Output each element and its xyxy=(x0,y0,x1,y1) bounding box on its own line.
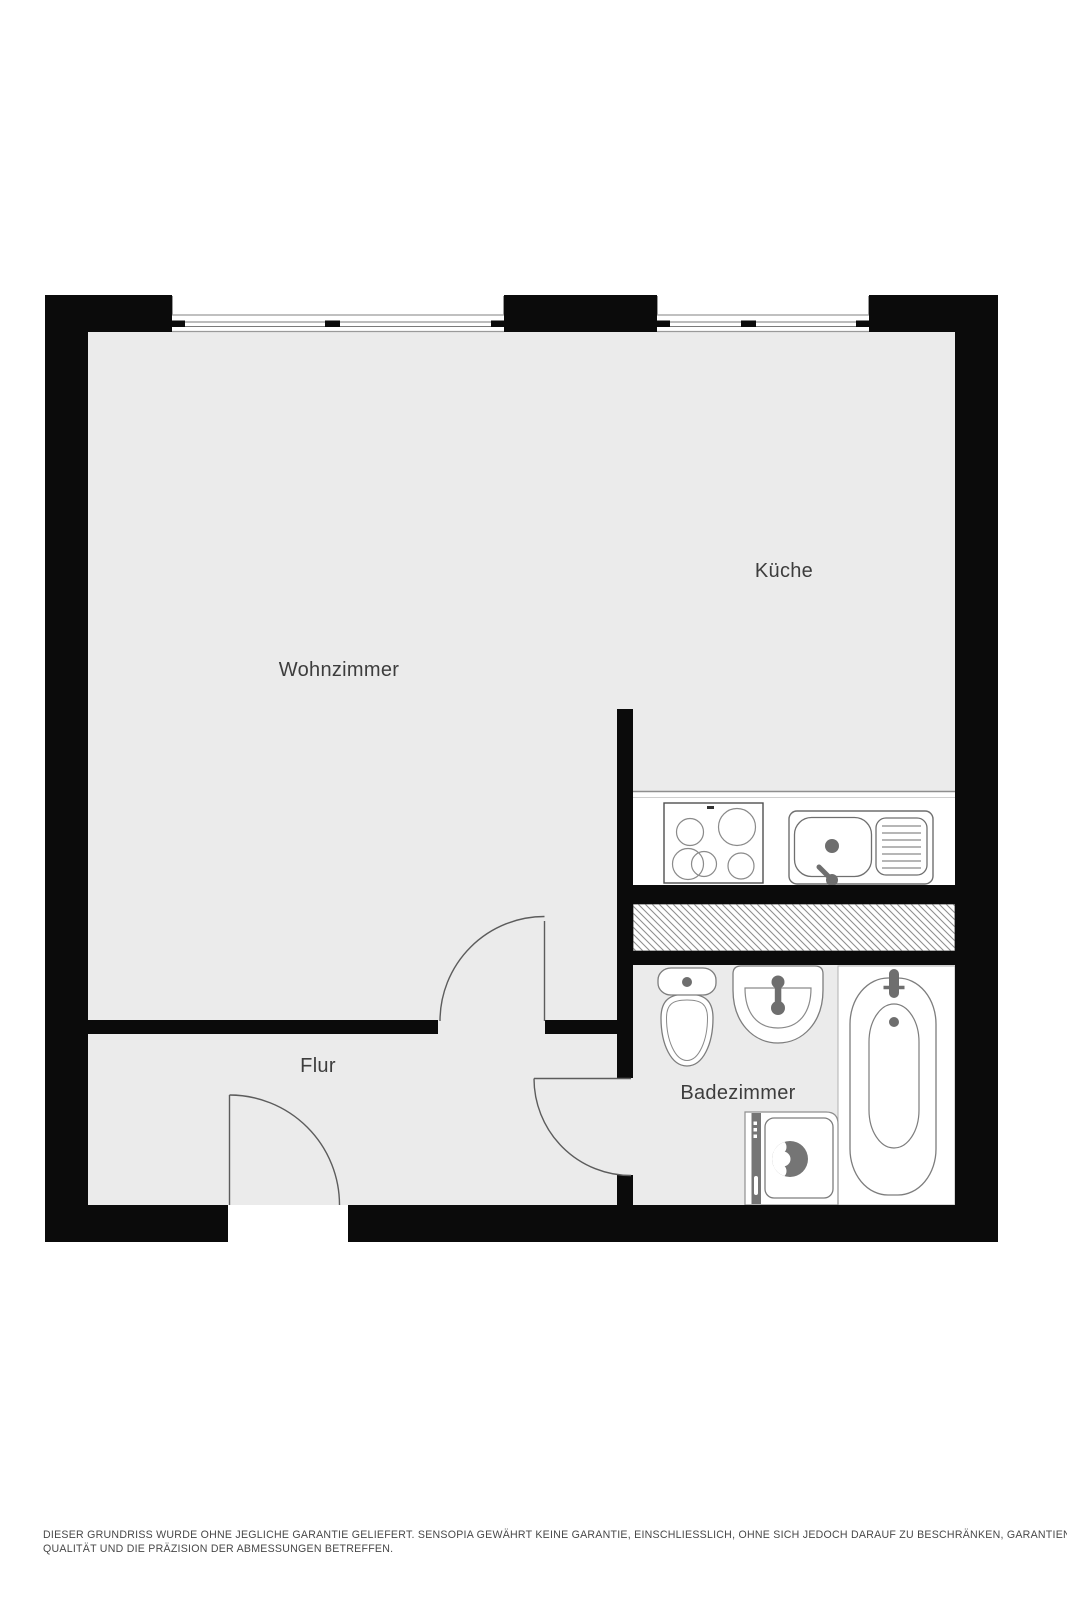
disclaimer: DIESER GRUNDRISS WURDE OHNE JEGLICHE GAR… xyxy=(43,1529,1053,1556)
window-left-icon xyxy=(172,296,504,332)
wall-bottom-right xyxy=(348,1205,998,1242)
wall-center-lower-stub xyxy=(617,1175,633,1207)
floor-plan: Wohnzimmer Küche Flur Badezimmer xyxy=(0,0,1067,1600)
room-floor-area xyxy=(86,332,955,1205)
tub-faucet-icon xyxy=(889,969,899,998)
stove-icon xyxy=(664,803,763,883)
wall-right xyxy=(955,295,998,1242)
stove-control-mark xyxy=(707,806,714,809)
room-label-badezimmer: Badezimmer xyxy=(680,1082,795,1104)
wall-left xyxy=(45,295,88,1242)
room-label-kueche: Küche xyxy=(755,560,813,582)
faucet-icon xyxy=(825,839,839,853)
wall-shaft-top xyxy=(617,885,955,904)
wall-top-right xyxy=(869,295,998,332)
floor-plan-page: Wohnzimmer Küche Flur Badezimmer DIESER … xyxy=(0,0,1067,1600)
faucet-lever-knob xyxy=(826,874,838,886)
room-label-flur: Flur xyxy=(300,1055,336,1077)
toilet-flush-button xyxy=(682,977,692,987)
sink-drainer xyxy=(876,818,927,875)
bathtub-icon xyxy=(838,966,955,1205)
window-right-icon xyxy=(657,296,869,332)
washing-machine-icon xyxy=(745,1112,838,1205)
disclaimer-line-2: QUALITÄT UND DIE PRÄZISION DER ABMESSUNG… xyxy=(43,1543,1053,1557)
tub-drain xyxy=(889,1017,899,1027)
wall-top-middle xyxy=(504,295,657,332)
room-label-wohnzimmer: Wohnzimmer xyxy=(279,659,399,681)
disclaimer-line-1: DIESER GRUNDRISS WURDE OHNE JEGLICHE GAR… xyxy=(43,1529,1053,1543)
wall-hall-left xyxy=(45,1020,438,1034)
washer-handle xyxy=(754,1176,758,1195)
floors xyxy=(86,332,955,1205)
wall-top-left xyxy=(45,295,172,332)
ventilation-shaft-hatch xyxy=(633,904,955,951)
kitchen-counter xyxy=(633,791,955,886)
wall-bottom-left xyxy=(45,1205,228,1242)
wall-shaft-bottom xyxy=(617,951,955,965)
kitchen-sink-icon xyxy=(789,811,933,886)
